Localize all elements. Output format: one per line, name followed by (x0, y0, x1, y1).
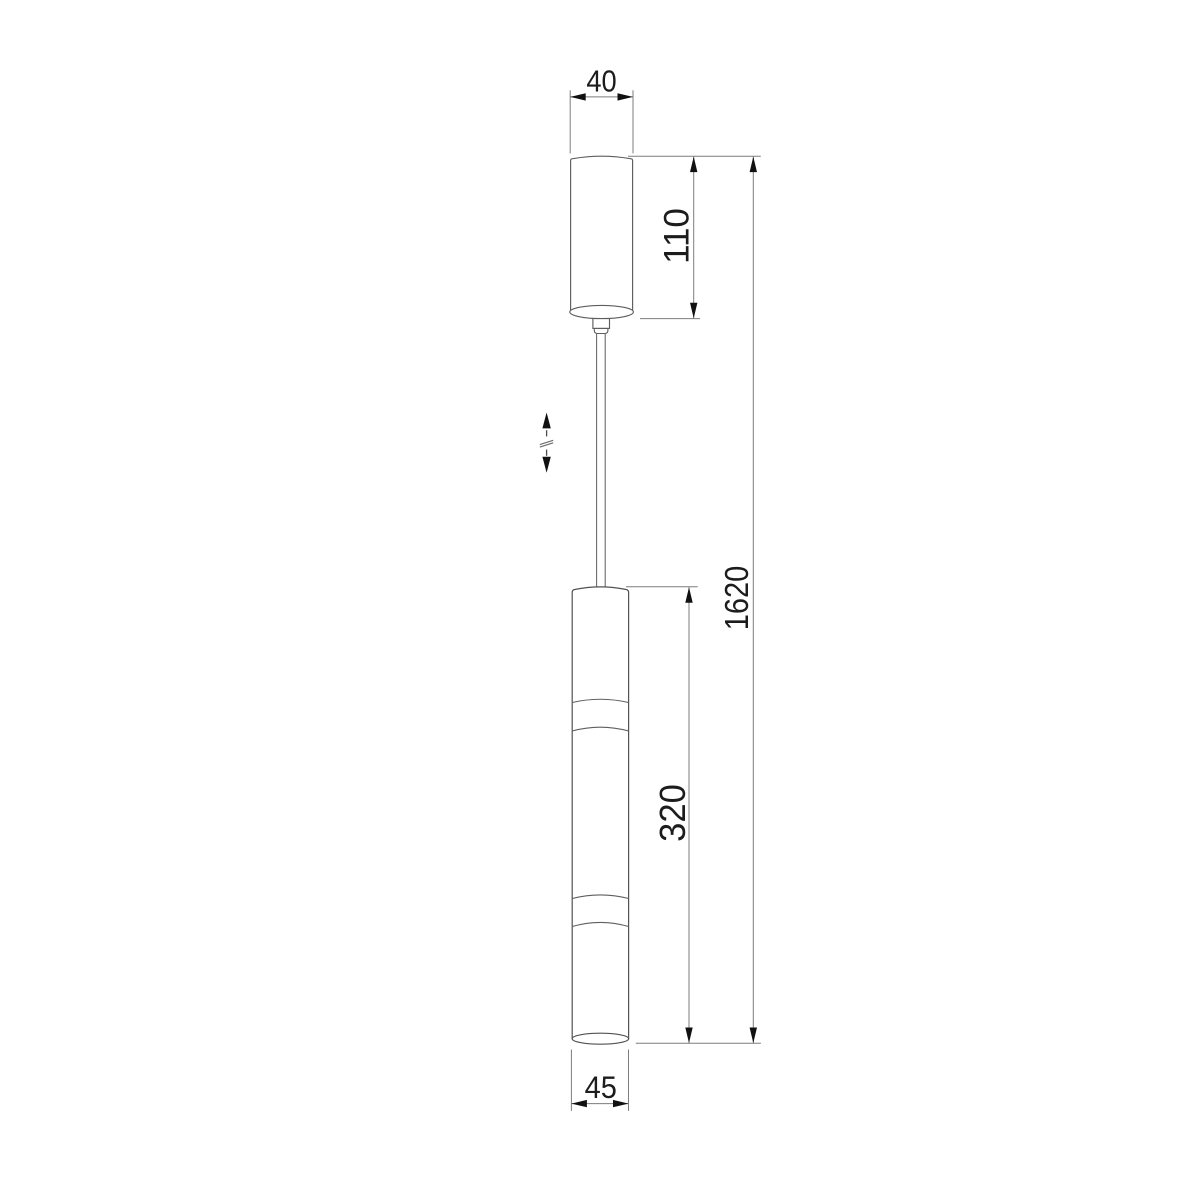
svg-text:320: 320 (653, 784, 693, 842)
svg-text:45: 45 (585, 1071, 617, 1105)
svg-text:40: 40 (586, 65, 616, 99)
svg-text:1620: 1620 (718, 566, 755, 631)
svg-text:110: 110 (657, 208, 696, 264)
